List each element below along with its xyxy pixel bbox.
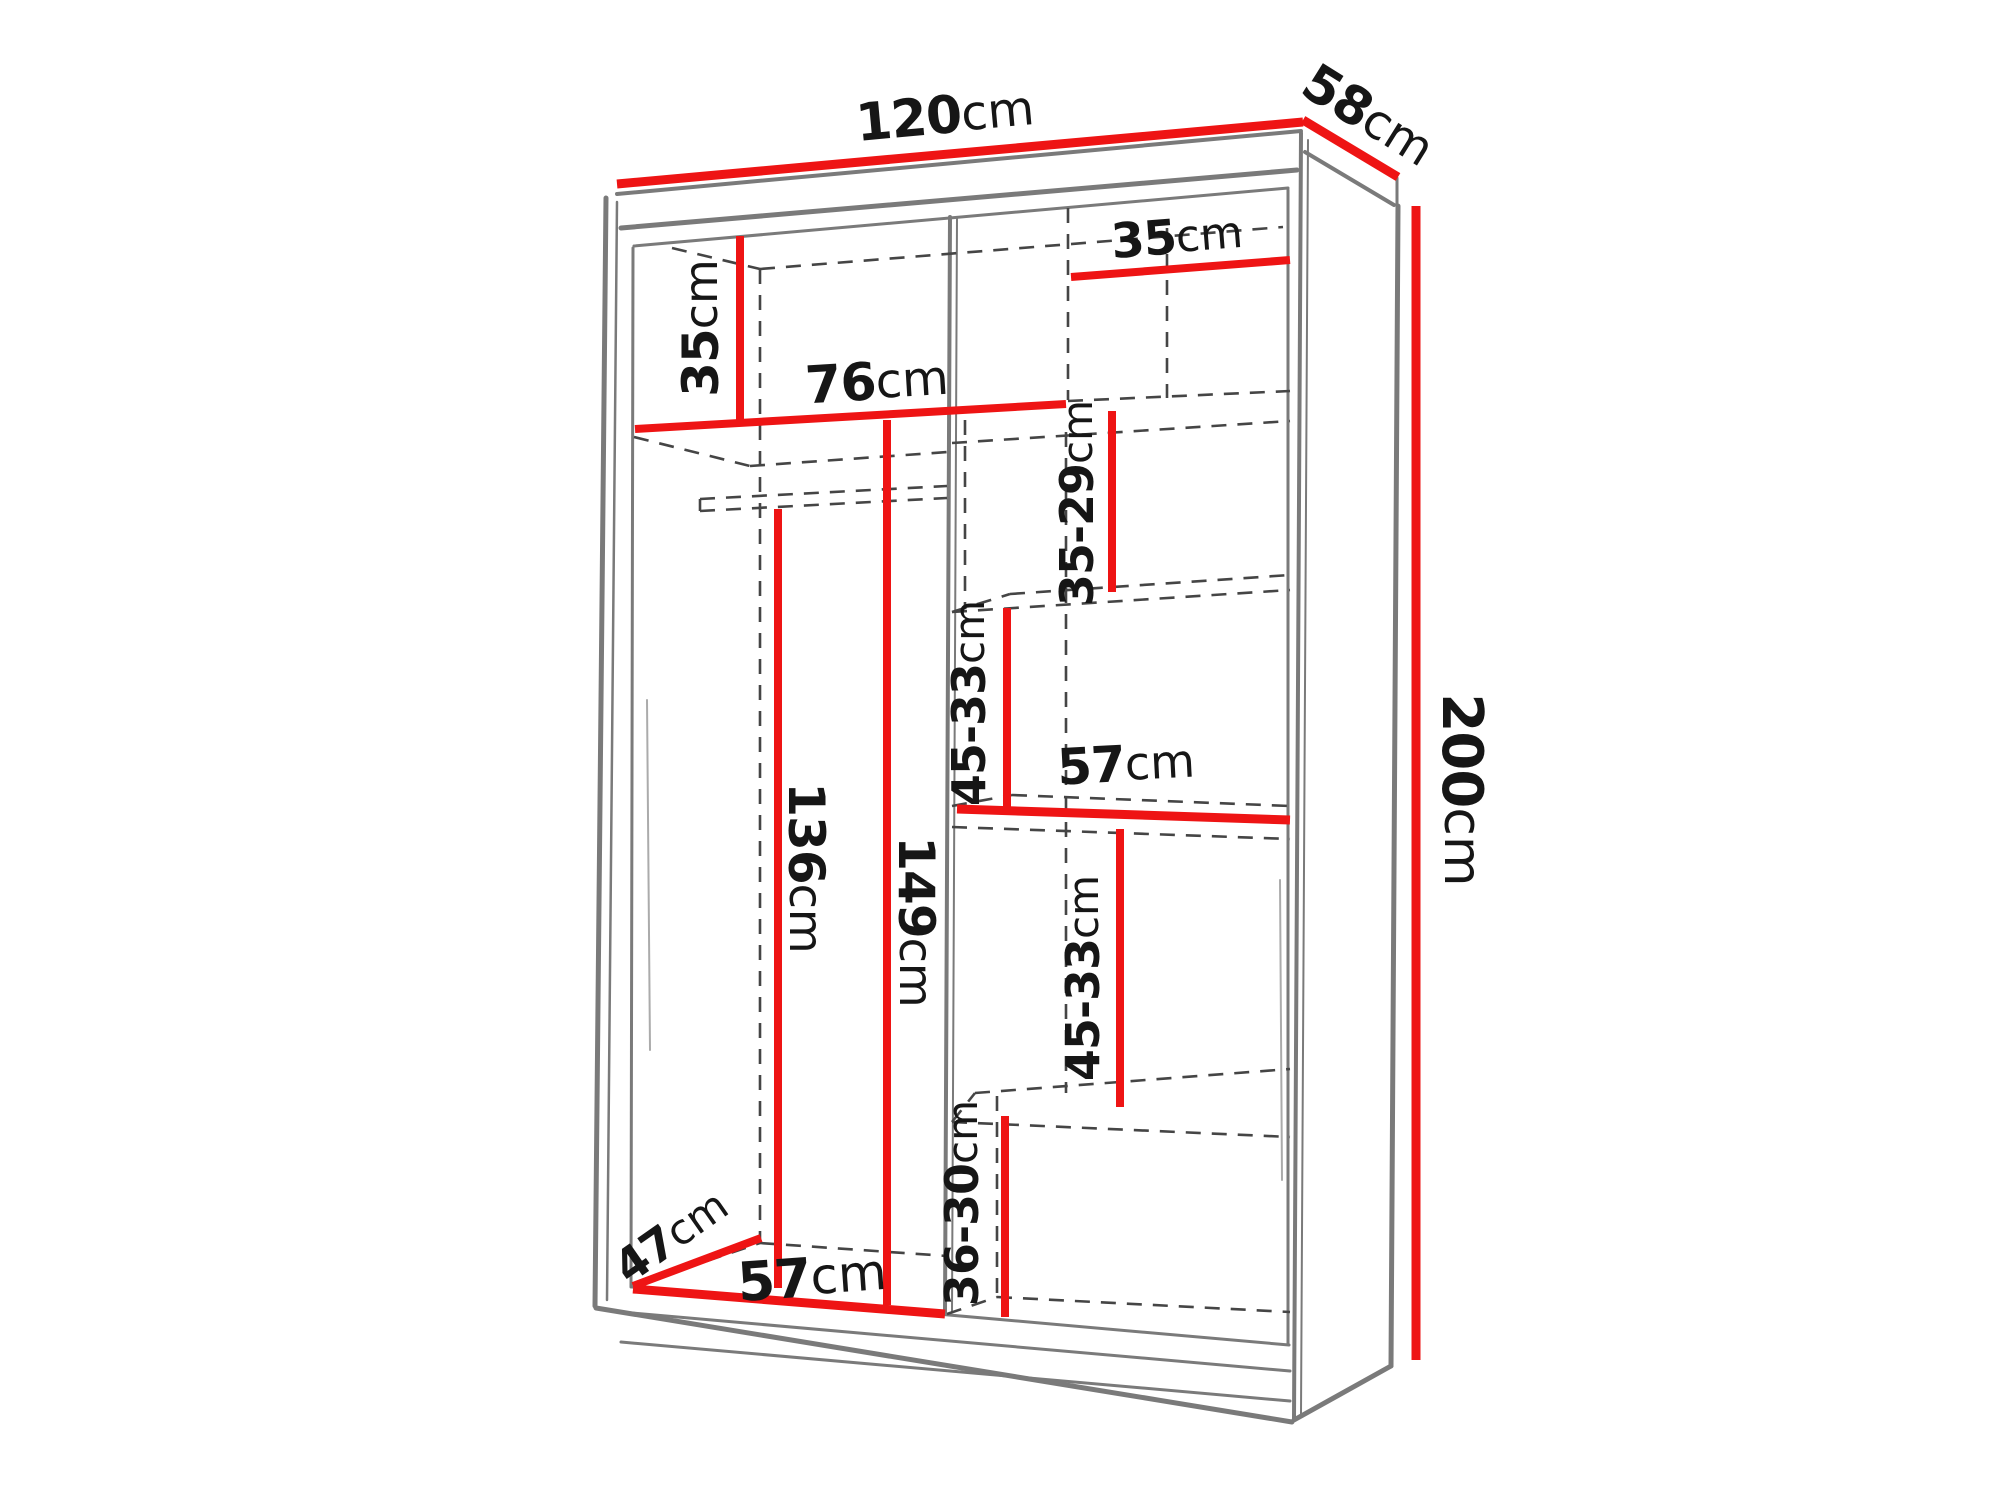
left-inner-wall <box>631 248 633 1287</box>
dim-label-35-29-value: 35-29 <box>1050 464 1104 606</box>
dim-label-height-200: 200cm <box>1430 693 1495 886</box>
dim-label-57-bottom-unit: cm <box>808 1243 888 1306</box>
dim-label-45-33-upper-unit: cm <box>945 600 994 664</box>
diagram-background <box>0 0 2000 1500</box>
dim-label-width-120-value: 120 <box>853 85 964 154</box>
dim-label-35-29-unit: cm <box>1053 400 1102 464</box>
dim-label-136: 136cm <box>777 782 835 953</box>
dim-label-136-value: 136 <box>777 782 835 883</box>
dim-label-57-bottom-value: 57 <box>735 1246 812 1314</box>
dim-label-top-left-35-unit: cm <box>674 259 728 329</box>
dim-label-57-middle: 57cm <box>1056 731 1197 796</box>
dim-label-149-unit: cm <box>889 938 943 1008</box>
dim-label-45-33-upper: 45-33cm <box>942 600 996 806</box>
dim-label-36-30-value: 36-30 <box>935 1164 989 1306</box>
dim-label-45-33-lower-value: 45-33 <box>1056 939 1110 1081</box>
dim-label-top-right-35-value: 35 <box>1109 209 1178 270</box>
dim-label-76-value: 76 <box>804 352 878 416</box>
dim-label-76-unit: cm <box>874 350 950 410</box>
diagram-canvas: 120cm58cm200cm35cm76cm35cm35-29cm45-33cm… <box>0 0 2000 1500</box>
dim-label-149-value: 149 <box>887 836 945 937</box>
dim-label-57-middle-unit: cm <box>1123 733 1196 791</box>
dim-label-top-left-35-value: 35 <box>672 329 730 397</box>
dim-label-45-33-lower: 45-33cm <box>1056 875 1110 1081</box>
dim-label-76: 76cm <box>804 348 951 417</box>
dim-label-top-left-35: 35cm <box>672 259 730 397</box>
dim-label-149: 149cm <box>887 836 945 1007</box>
dim-label-36-30: 36-30cm <box>935 1100 989 1306</box>
dim-label-top-right-35-unit: cm <box>1174 206 1245 262</box>
dim-label-36-30-unit: cm <box>938 1100 987 1164</box>
dim-label-136-unit: cm <box>779 884 833 954</box>
dim-label-width-120-unit: cm <box>959 80 1037 142</box>
dim-label-35-29: 35-29cm <box>1050 400 1104 606</box>
dim-label-45-33-upper-value: 45-33 <box>942 664 996 806</box>
dim-label-height-200-unit: cm <box>1432 807 1492 886</box>
dim-label-45-33-lower-unit: cm <box>1059 875 1108 939</box>
wardrobe-dimension-diagram: 120cm58cm200cm35cm76cm35cm35-29cm45-33cm… <box>0 0 2000 1500</box>
dim-label-57-middle-value: 57 <box>1056 735 1127 796</box>
dim-label-height-200-value: 200 <box>1430 693 1495 807</box>
